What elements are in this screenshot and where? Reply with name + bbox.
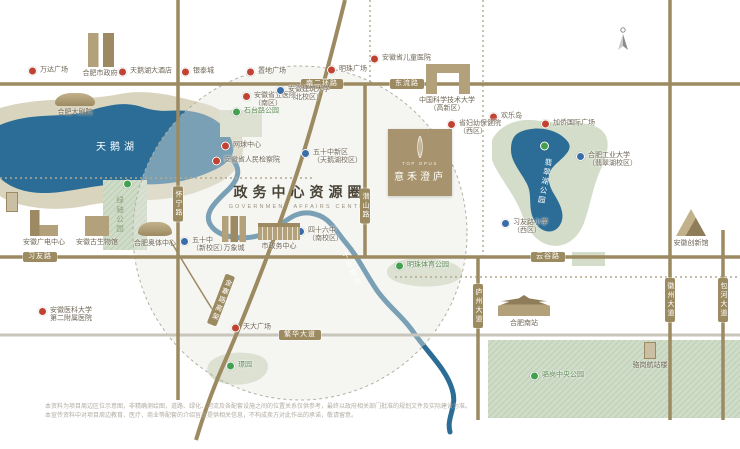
green-poi-marker: 石台路公园 [232, 108, 279, 117]
luogang-park-shape [488, 340, 740, 418]
blue-poi-marker: 五十中（新校区） [180, 237, 227, 253]
red-poi-marker: 网球中心 [221, 142, 261, 151]
building-label: 市政务中心 [262, 243, 297, 251]
blue-marker-icon [301, 149, 310, 158]
building-label: 合肥市政府 [83, 70, 118, 78]
red-poi-marker: 加侨国际广场 [541, 120, 595, 129]
road-badge: 包河大道 [718, 278, 728, 322]
building-label: 安徽古生物馆 [76, 239, 118, 247]
poi-label: 明珠体育公园 [407, 262, 449, 270]
building-label: 安徽创新馆 [674, 240, 709, 248]
road-badge: 庐州大道 [473, 284, 483, 328]
poi-label: 习友路小学（西区） [513, 219, 548, 235]
project-logo: TOP OPUS 意禾澄庐 [388, 129, 452, 196]
green-marker-icon [530, 372, 539, 381]
poi-label: 欢乐岛 [501, 113, 522, 121]
poi-label: 骆岗中央公园 [542, 372, 584, 380]
map-base-layer [0, 0, 740, 449]
building-icon-towers [222, 216, 246, 242]
blue-marker-icon [501, 219, 510, 228]
building-icon-stadium [138, 222, 172, 236]
red-poi-marker: 万达广场 [28, 67, 68, 76]
map-subtitle: GOVERNMENT AFFAIRS CENTER [229, 204, 372, 210]
poi-label: 石台路公园 [244, 108, 279, 116]
building-label: 万象城 [224, 245, 245, 253]
small-green-shape [572, 252, 605, 266]
poi-label: 安徽省人民检察院 [224, 157, 280, 165]
poi-label: 合肥工业大学（翡翠湖校区） [588, 152, 637, 168]
red-poi-marker: 安徽医科大学第二附属医院 [38, 307, 92, 323]
red-poi-marker: 天大广场 [231, 324, 271, 333]
blue-marker-icon [576, 152, 585, 161]
poi-label: 安徽建筑大学（北校区） [288, 86, 330, 102]
compass-icon [612, 26, 634, 54]
red-poi-marker: 省妇幼保健院（西区） [447, 120, 501, 136]
poi-label: 天大广场 [243, 324, 271, 332]
green-marker-icon [540, 142, 549, 151]
poi-label: 天鹅湖大酒店 [130, 68, 172, 76]
road-badge: 东流路 [390, 79, 424, 89]
poi-label: 五十中新区（天鹅湖校区） [313, 149, 362, 165]
building-icon-dome [55, 93, 95, 106]
building-icon-small [6, 192, 18, 212]
blue-marker-icon [276, 86, 285, 95]
building-icon-small [644, 342, 656, 359]
red-marker-icon [327, 66, 336, 75]
red-marker-icon [28, 67, 37, 76]
red-marker-icon [447, 120, 456, 129]
green-poi-marker [123, 180, 132, 189]
green-poi-marker: 骆岗中央公园 [530, 372, 584, 381]
building-icon-box [85, 216, 109, 236]
red-marker-icon [181, 68, 190, 77]
road-badge: 潜山路 [360, 189, 370, 224]
logo-zh-text: 意禾澄庐 [394, 168, 446, 183]
building-icon-hall [258, 223, 300, 240]
logo-en-text: TOP OPUS [402, 161, 438, 166]
green-poi-marker [540, 142, 549, 151]
building-label: 合肥奥体中心 [134, 240, 176, 248]
disclaimer-line-1: 本资料为项目周边区位示意图，非精确测绘图，道路、绿化、河流及各配套设施之间的位置… [45, 403, 471, 412]
red-poi-marker: 安徽省儿童医院 [370, 55, 431, 64]
red-marker-icon [242, 92, 251, 101]
red-marker-icon [370, 55, 379, 64]
building-label: 合肥大剧院 [58, 109, 93, 117]
area-label: 绿轴公园 [115, 196, 126, 234]
blue-poi-marker: 合肥工业大学（翡翠湖校区） [576, 152, 637, 168]
road-badge: 习友路 [23, 252, 57, 262]
red-marker-icon [246, 68, 255, 77]
road-badge: 繁华大道 [279, 330, 321, 340]
building-label: 合肥南站 [510, 320, 538, 328]
location-map: 政务中心资源圈 GOVERNMENT AFFAIRS CENTER TOP OP… [0, 0, 740, 449]
disclaimer-line-2: 本宣传资料中对项目周边教育、医疗、商业等配套的介绍旨在提供相关信息，不构成卖方对… [45, 412, 471, 421]
map-title-block: 政务中心资源圈 GOVERNMENT AFFAIRS CENTER [229, 182, 372, 210]
building-label: 骆岗航站楼 [633, 362, 668, 370]
red-marker-icon [541, 120, 550, 129]
poi-label: 置地广场 [258, 68, 286, 76]
blue-poi-marker: 五十中新区（天鹅湖校区） [301, 149, 362, 165]
poi-label: 安徽医科大学第二附属医院 [50, 307, 92, 323]
road-badge: 怀宁路 [173, 187, 183, 222]
green-marker-icon [226, 362, 235, 371]
disclaimer-text: 本资料为项目周边区位示意图，非精确测绘图，道路、绿化、河流及各配套设施之间的位置… [45, 403, 471, 421]
poi-label: 璟园 [238, 362, 252, 370]
poi-label: 省妇幼保健院（西区） [459, 120, 501, 136]
green-poi-marker: 明珠体育公园 [395, 262, 449, 271]
blue-poi-marker: 习友路小学（西区） [501, 219, 548, 235]
building-icon-twin [88, 33, 114, 67]
poi-label: 万达广场 [40, 67, 68, 75]
red-marker-icon [38, 307, 47, 316]
poi-label: 明珠广场 [339, 66, 367, 74]
poi-label: 网球中心 [233, 142, 261, 150]
red-poi-marker: 银泰城 [181, 68, 214, 77]
red-poi-marker: 明珠广场 [327, 66, 367, 75]
red-poi-marker: 置地广场 [246, 68, 286, 77]
swan-lake-label: 天鹅湖 [96, 138, 138, 153]
blue-poi-marker: 四十六中（南校区） [296, 227, 343, 243]
building-label: 安徽广电中心 [23, 239, 65, 247]
green-marker-icon [232, 108, 241, 117]
red-poi-marker: 天鹅湖大酒店 [118, 68, 172, 77]
red-marker-icon [118, 68, 127, 77]
red-poi-marker: 安徽省人民检察院 [212, 157, 280, 166]
green-marker-icon [395, 262, 404, 271]
blue-poi-marker: 安徽建筑大学（北校区） [276, 86, 330, 102]
green-marker-icon [123, 180, 132, 189]
poi-label: 安徽省儿童医院 [382, 55, 431, 63]
blue-marker-icon [180, 237, 189, 246]
building-icon-ltower [30, 210, 58, 236]
red-marker-icon [221, 142, 230, 151]
building-icon-gate [426, 64, 470, 94]
poi-label: 四十六中（南校区） [308, 227, 343, 243]
map-title: 政务中心资源圈 [229, 182, 372, 202]
building-label: 中国科学技术大学（高新区） [419, 97, 475, 113]
poi-label: 银泰城 [193, 68, 214, 76]
road-badge: 徽州大道 [665, 278, 675, 322]
road-badge: 云谷路 [531, 252, 565, 262]
red-marker-icon [212, 157, 221, 166]
poi-label: 加侨国际广场 [553, 120, 595, 128]
red-marker-icon [231, 324, 240, 333]
green-poi-marker: 璟园 [226, 362, 252, 371]
logo-leaf-icon [414, 136, 426, 158]
